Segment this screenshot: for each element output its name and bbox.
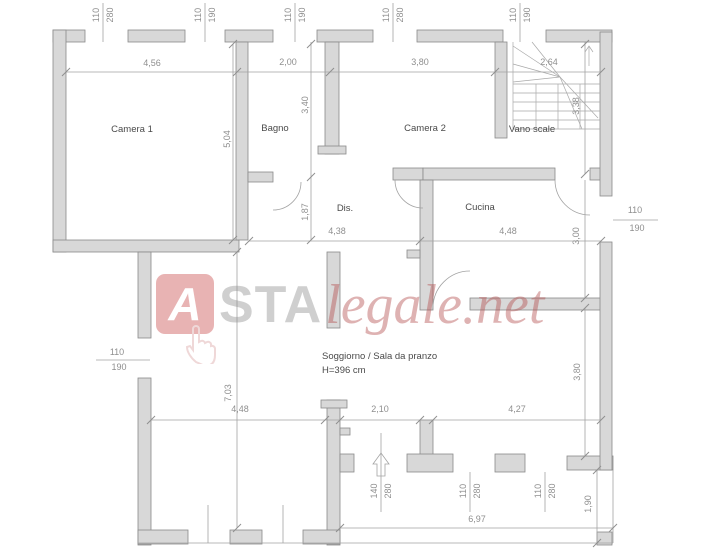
dim-v-1-90: 1,90: [583, 484, 593, 524]
dim-v-3-00: 3,00: [571, 216, 581, 256]
dim-mid-2: 4,48: [486, 226, 530, 237]
dim-v-5-04: 5,04: [222, 119, 232, 159]
dim-mid-1: 4,38: [315, 226, 359, 237]
floor-plan-canvas: Camera 1 Bagno Camera 2 Vano scale Dis. …: [0, 0, 725, 550]
opening-bottom-2-height: 280: [472, 471, 482, 511]
opening-right-width: 110: [613, 205, 657, 216]
opening-bottom-2-width: 110: [458, 471, 468, 511]
dim-v-7-03: 7,03: [223, 373, 233, 413]
room-label-camera-1: Camera 1: [62, 124, 202, 135]
opening-top-2-width: 110: [193, 0, 203, 35]
opening-left-height: 190: [97, 362, 141, 373]
floorplan-walls-graphic: [0, 0, 725, 550]
room-label-dis: Dis.: [275, 203, 415, 214]
dim-v-1-87: 1,87: [300, 192, 310, 232]
opening-top-2-height: 190: [207, 0, 217, 35]
opening-top-4-height: 280: [395, 0, 405, 35]
opening-top-5-height: 190: [522, 0, 532, 35]
dim-v-3-80: 3,80: [572, 352, 582, 392]
dim-bottom-total: 6,97: [455, 514, 499, 525]
opening-left-width: 110: [95, 347, 139, 358]
soggiorno-height-note: H=396 cm: [322, 364, 437, 378]
dim-low-2: 2,10: [358, 404, 402, 415]
opening-bottom-3-width: 110: [533, 471, 543, 511]
opening-top-4-width: 110: [381, 0, 391, 35]
room-label-soggiorno: Soggiorno / Sala da pranzo H=396 cm: [322, 350, 437, 378]
soggiorno-name: Soggiorno / Sala da pranzo: [322, 350, 437, 364]
room-label-cucina: Cucina: [410, 202, 550, 213]
dim-top-1: 4,56: [130, 58, 174, 69]
opening-top-1-height: 280: [105, 0, 115, 35]
opening-bottom-1-height: 280: [383, 471, 393, 511]
dim-low-3: 4,27: [495, 404, 539, 415]
dim-top-2: 2,00: [266, 57, 310, 68]
dim-v-3-38: 3,38: [571, 86, 581, 126]
opening-right-height: 190: [615, 223, 659, 234]
room-label-vano-scale: Vano scale: [462, 124, 602, 135]
opening-top-3-height: 190: [297, 0, 307, 35]
dim-top-3: 3,80: [398, 57, 442, 68]
opening-top-1-width: 110: [91, 0, 101, 35]
opening-bottom-3-height: 280: [547, 471, 557, 511]
opening-top-3-width: 110: [283, 0, 293, 35]
opening-bottom-1-width: 140: [369, 471, 379, 511]
dim-v-3-40: 3,40: [300, 85, 310, 125]
opening-top-5-width: 110: [508, 0, 518, 35]
dim-top-4: 2,64: [527, 57, 571, 68]
